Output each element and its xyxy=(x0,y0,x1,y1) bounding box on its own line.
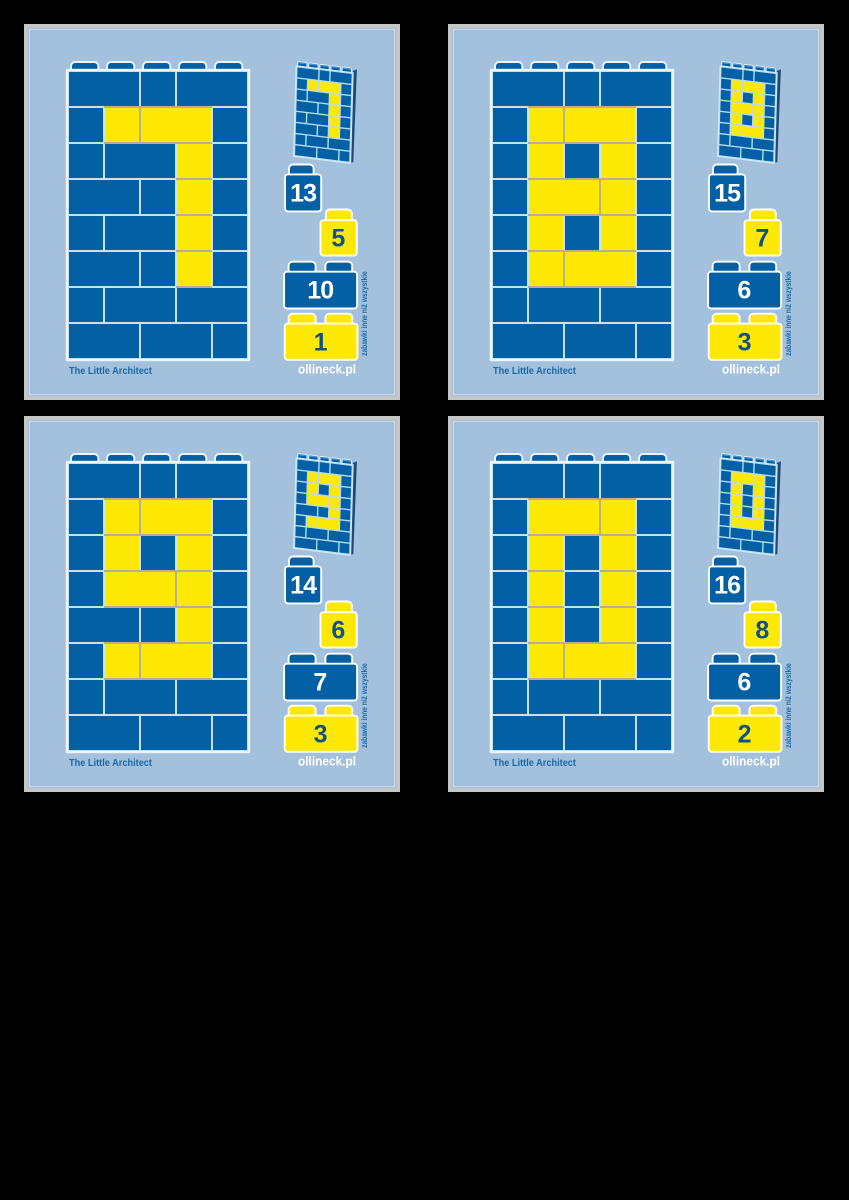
svg-text:The Little Architect: The Little Architect xyxy=(69,365,152,377)
svg-text:6: 6 xyxy=(737,668,751,696)
svg-text:zabawki inne niż wszystkie: zabawki inne niż wszystkie xyxy=(784,663,793,748)
svg-text:16: 16 xyxy=(714,572,740,600)
svg-text:7: 7 xyxy=(313,668,327,696)
svg-text:3: 3 xyxy=(314,720,328,748)
svg-text:3: 3 xyxy=(738,328,752,356)
svg-text:zabawki inne niż wszystkie: zabawki inne niż wszystkie xyxy=(360,663,369,748)
svg-text:The Little Architect: The Little Architect xyxy=(69,757,152,769)
svg-text:The Little Architect: The Little Architect xyxy=(493,757,576,769)
svg-text:ollineck.pl: ollineck.pl xyxy=(722,753,780,768)
svg-text:2: 2 xyxy=(738,720,752,748)
svg-text:ollineck.pl: ollineck.pl xyxy=(722,361,780,376)
svg-text:5: 5 xyxy=(331,225,345,253)
svg-text:zabawki inne niż wszystkie: zabawki inne niż wszystkie xyxy=(784,271,793,356)
svg-text:1: 1 xyxy=(314,328,328,356)
svg-text:6: 6 xyxy=(331,617,345,645)
svg-text:ollineck.pl: ollineck.pl xyxy=(298,753,356,768)
svg-text:zabawki inne niż wszystkie: zabawki inne niż wszystkie xyxy=(360,271,369,356)
svg-text:14: 14 xyxy=(290,572,317,600)
svg-text:ollineck.pl: ollineck.pl xyxy=(298,361,356,376)
svg-text:6: 6 xyxy=(737,276,751,304)
svg-text:The Little Architect: The Little Architect xyxy=(493,365,576,377)
svg-text:13: 13 xyxy=(290,180,316,208)
svg-text:7: 7 xyxy=(755,225,769,253)
svg-text:10: 10 xyxy=(307,276,333,304)
svg-text:15: 15 xyxy=(714,180,741,208)
svg-text:8: 8 xyxy=(755,617,769,645)
